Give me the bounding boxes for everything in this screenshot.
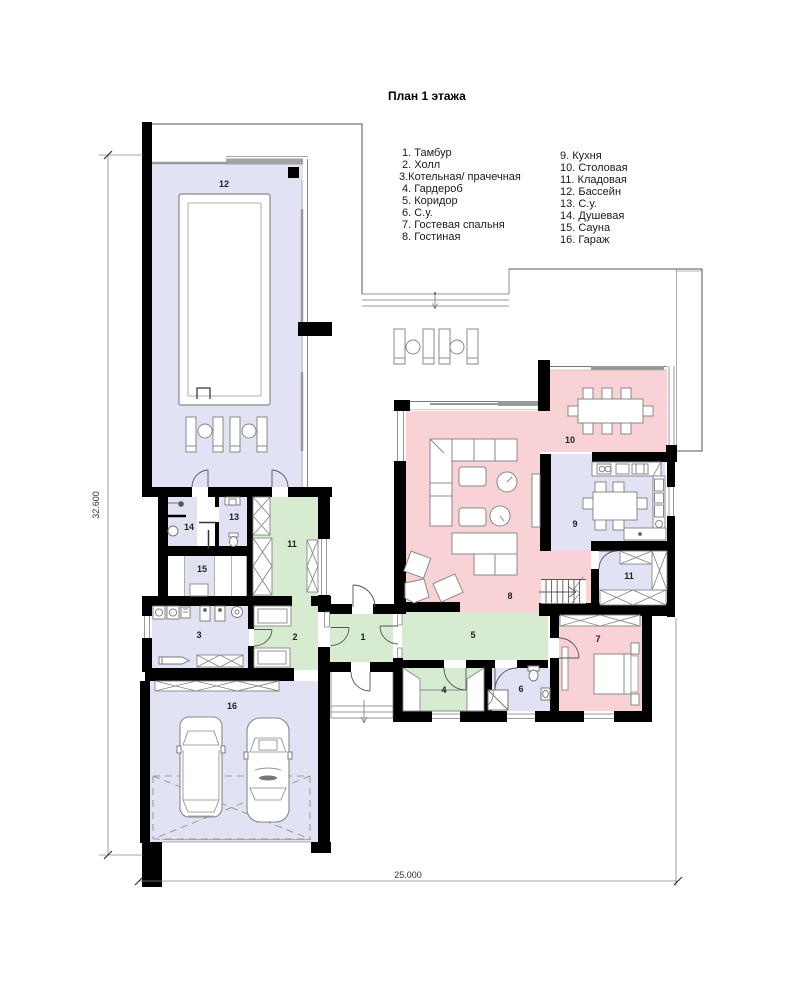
svg-text:16. Гараж: 16. Гараж: [560, 234, 610, 246]
svg-text:7: 7: [595, 634, 600, 644]
svg-text:13: 13: [229, 512, 239, 522]
svg-text:10: 10: [565, 435, 575, 445]
svg-text:1. Тамбур: 1. Тамбур: [402, 147, 452, 159]
svg-text:11. Кладовая: 11. Кладовая: [560, 174, 627, 186]
svg-text:11: 11: [287, 539, 297, 549]
svg-text:10. Столовая: 10. Столовая: [560, 162, 628, 174]
svg-text:25.000: 25.000: [394, 870, 422, 880]
svg-text:16: 16: [227, 701, 237, 711]
svg-text:12: 12: [219, 179, 229, 189]
svg-text:32.600: 32.600: [91, 491, 101, 519]
svg-text:2: 2: [292, 632, 297, 642]
svg-text:15. Сауна: 15. Сауна: [560, 222, 611, 234]
svg-text:5. Коридор: 5. Коридор: [402, 195, 458, 207]
svg-text:14: 14: [184, 522, 194, 532]
svg-text:13. С.у.: 13. С.у.: [560, 198, 597, 210]
svg-text:11: 11: [624, 571, 634, 581]
svg-text:7. Гостевая спальня: 7. Гостевая спальня: [402, 219, 505, 231]
svg-text:5: 5: [470, 630, 475, 640]
svg-text:4: 4: [441, 685, 446, 695]
svg-text:3.Котельная/ прачечная: 3.Котельная/ прачечная: [399, 171, 521, 183]
svg-text:6. С.у.: 6. С.у.: [402, 207, 433, 219]
svg-text:1: 1: [360, 632, 365, 642]
svg-text:6: 6: [518, 684, 523, 694]
svg-text:15: 15: [197, 564, 207, 574]
svg-text:2. Холл: 2. Холл: [402, 159, 440, 171]
svg-text:3: 3: [196, 630, 201, 640]
svg-text:8: 8: [507, 591, 512, 601]
svg-text:14. Душевая: 14. Душевая: [560, 210, 624, 222]
svg-text:9: 9: [572, 519, 577, 529]
svg-text:4. Гардероб: 4. Гардероб: [402, 183, 463, 195]
svg-text:План 1 этажа: План 1 этажа: [388, 89, 466, 103]
svg-text:9. Кухня: 9. Кухня: [560, 150, 602, 162]
svg-text:12. Бассейн: 12. Бассейн: [560, 186, 621, 198]
svg-text:8. Гостиная: 8. Гостиная: [402, 231, 460, 243]
